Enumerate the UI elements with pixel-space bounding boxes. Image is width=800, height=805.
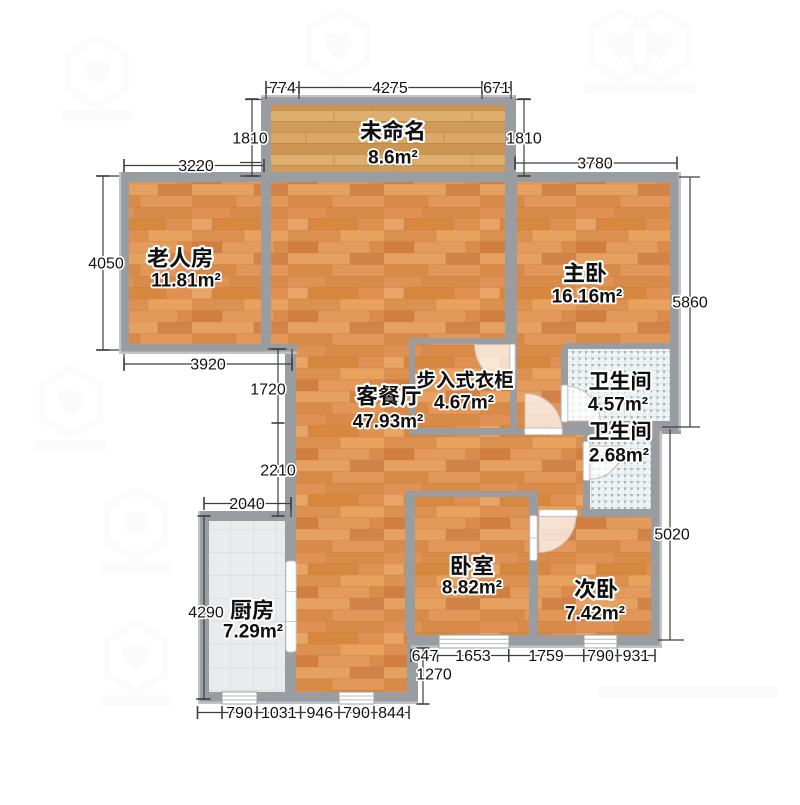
- svg-text:2040: 2040: [229, 496, 265, 513]
- svg-text:4275: 4275: [372, 80, 408, 97]
- svg-text:3220: 3220: [178, 158, 214, 175]
- svg-text:47.93m²: 47.93m²: [353, 412, 424, 433]
- svg-text:11.81m²: 11.81m²: [151, 271, 221, 292]
- svg-text:1720: 1720: [250, 382, 286, 399]
- svg-text:4290: 4290: [188, 605, 224, 622]
- svg-text:1031: 1031: [261, 705, 297, 722]
- svg-text:5020: 5020: [654, 527, 690, 544]
- svg-text:8.82m²: 8.82m²: [442, 578, 502, 599]
- svg-text:1653: 1653: [455, 648, 491, 665]
- svg-text:671: 671: [483, 80, 510, 97]
- svg-text:946: 946: [306, 705, 333, 722]
- svg-text:4050: 4050: [88, 256, 124, 273]
- svg-text:774: 774: [269, 80, 296, 97]
- svg-text:2.68m²: 2.68m²: [589, 446, 649, 467]
- svg-text:7.29m²: 7.29m²: [223, 622, 283, 643]
- svg-text:790: 790: [587, 648, 614, 665]
- svg-text:1759: 1759: [528, 648, 564, 665]
- svg-text:4.67m²: 4.67m²: [434, 393, 494, 414]
- svg-text:1810: 1810: [232, 131, 268, 148]
- svg-text:1270: 1270: [416, 667, 452, 684]
- svg-text:2210: 2210: [260, 463, 296, 480]
- svg-text:5860: 5860: [672, 295, 708, 312]
- svg-text:1810: 1810: [506, 131, 542, 148]
- svg-text:790: 790: [226, 705, 253, 722]
- svg-text:3920: 3920: [190, 357, 226, 374]
- svg-text:790: 790: [343, 705, 370, 722]
- svg-text:7.42m²: 7.42m²: [565, 604, 625, 625]
- svg-text:931: 931: [623, 648, 650, 665]
- svg-text:647: 647: [412, 648, 439, 665]
- svg-text:3780: 3780: [577, 156, 613, 173]
- svg-text:844: 844: [378, 705, 405, 722]
- svg-text:8.6m²: 8.6m²: [368, 148, 418, 169]
- svg-text:16.16m²: 16.16m²: [552, 287, 623, 308]
- svg-text:4.57m²: 4.57m²: [588, 395, 648, 416]
